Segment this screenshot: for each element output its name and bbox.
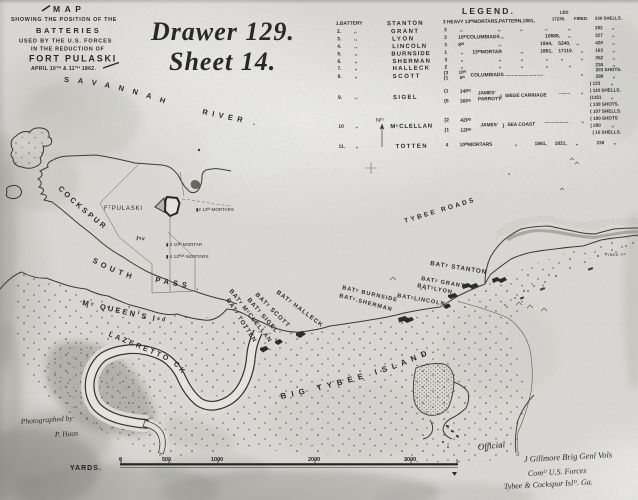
svg-text:500: 500	[162, 457, 171, 463]
svg-text:0: 0	[119, 457, 122, 463]
svg-text:1000: 1000	[211, 457, 223, 463]
svg-text:YARDS.: YARDS.	[70, 465, 102, 472]
svg-text:3000: 3000	[404, 457, 416, 463]
svg-text:2000: 2000	[308, 457, 320, 463]
